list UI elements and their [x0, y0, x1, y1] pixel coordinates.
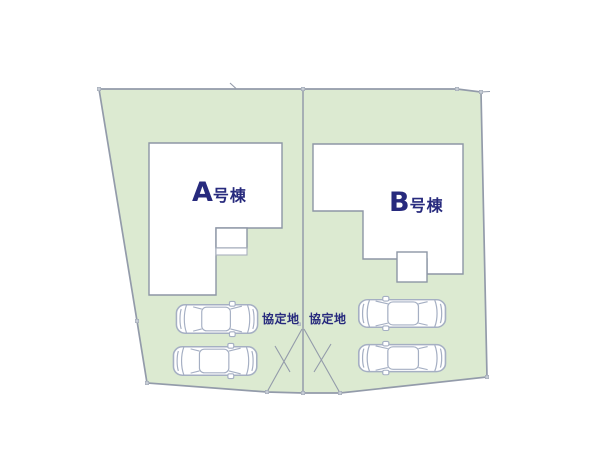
car-icon	[176, 301, 257, 336]
agreement-label-right: 協定地	[309, 313, 347, 325]
building-b-label: B号棟	[389, 189, 444, 216]
car-icon	[359, 341, 446, 374]
building-a-suffix: 号棟	[213, 186, 247, 205]
building-a-porch	[216, 228, 247, 248]
agreement-label-left: 協定地	[262, 313, 300, 325]
car-icon	[173, 343, 256, 378]
building-a-letter: A	[192, 177, 213, 208]
building-b-letter: B	[389, 187, 410, 218]
building-a-step	[216, 248, 247, 255]
building-a-label: A号棟	[192, 179, 247, 206]
boundary-tick	[230, 83, 236, 89]
building-b-porch	[397, 252, 427, 282]
car-icon	[359, 296, 446, 330]
site-plan-canvas	[0, 0, 600, 472]
building-b-suffix: 号棟	[410, 196, 444, 215]
site-plan: A号棟 B号棟 協定地 協定地	[0, 0, 600, 472]
